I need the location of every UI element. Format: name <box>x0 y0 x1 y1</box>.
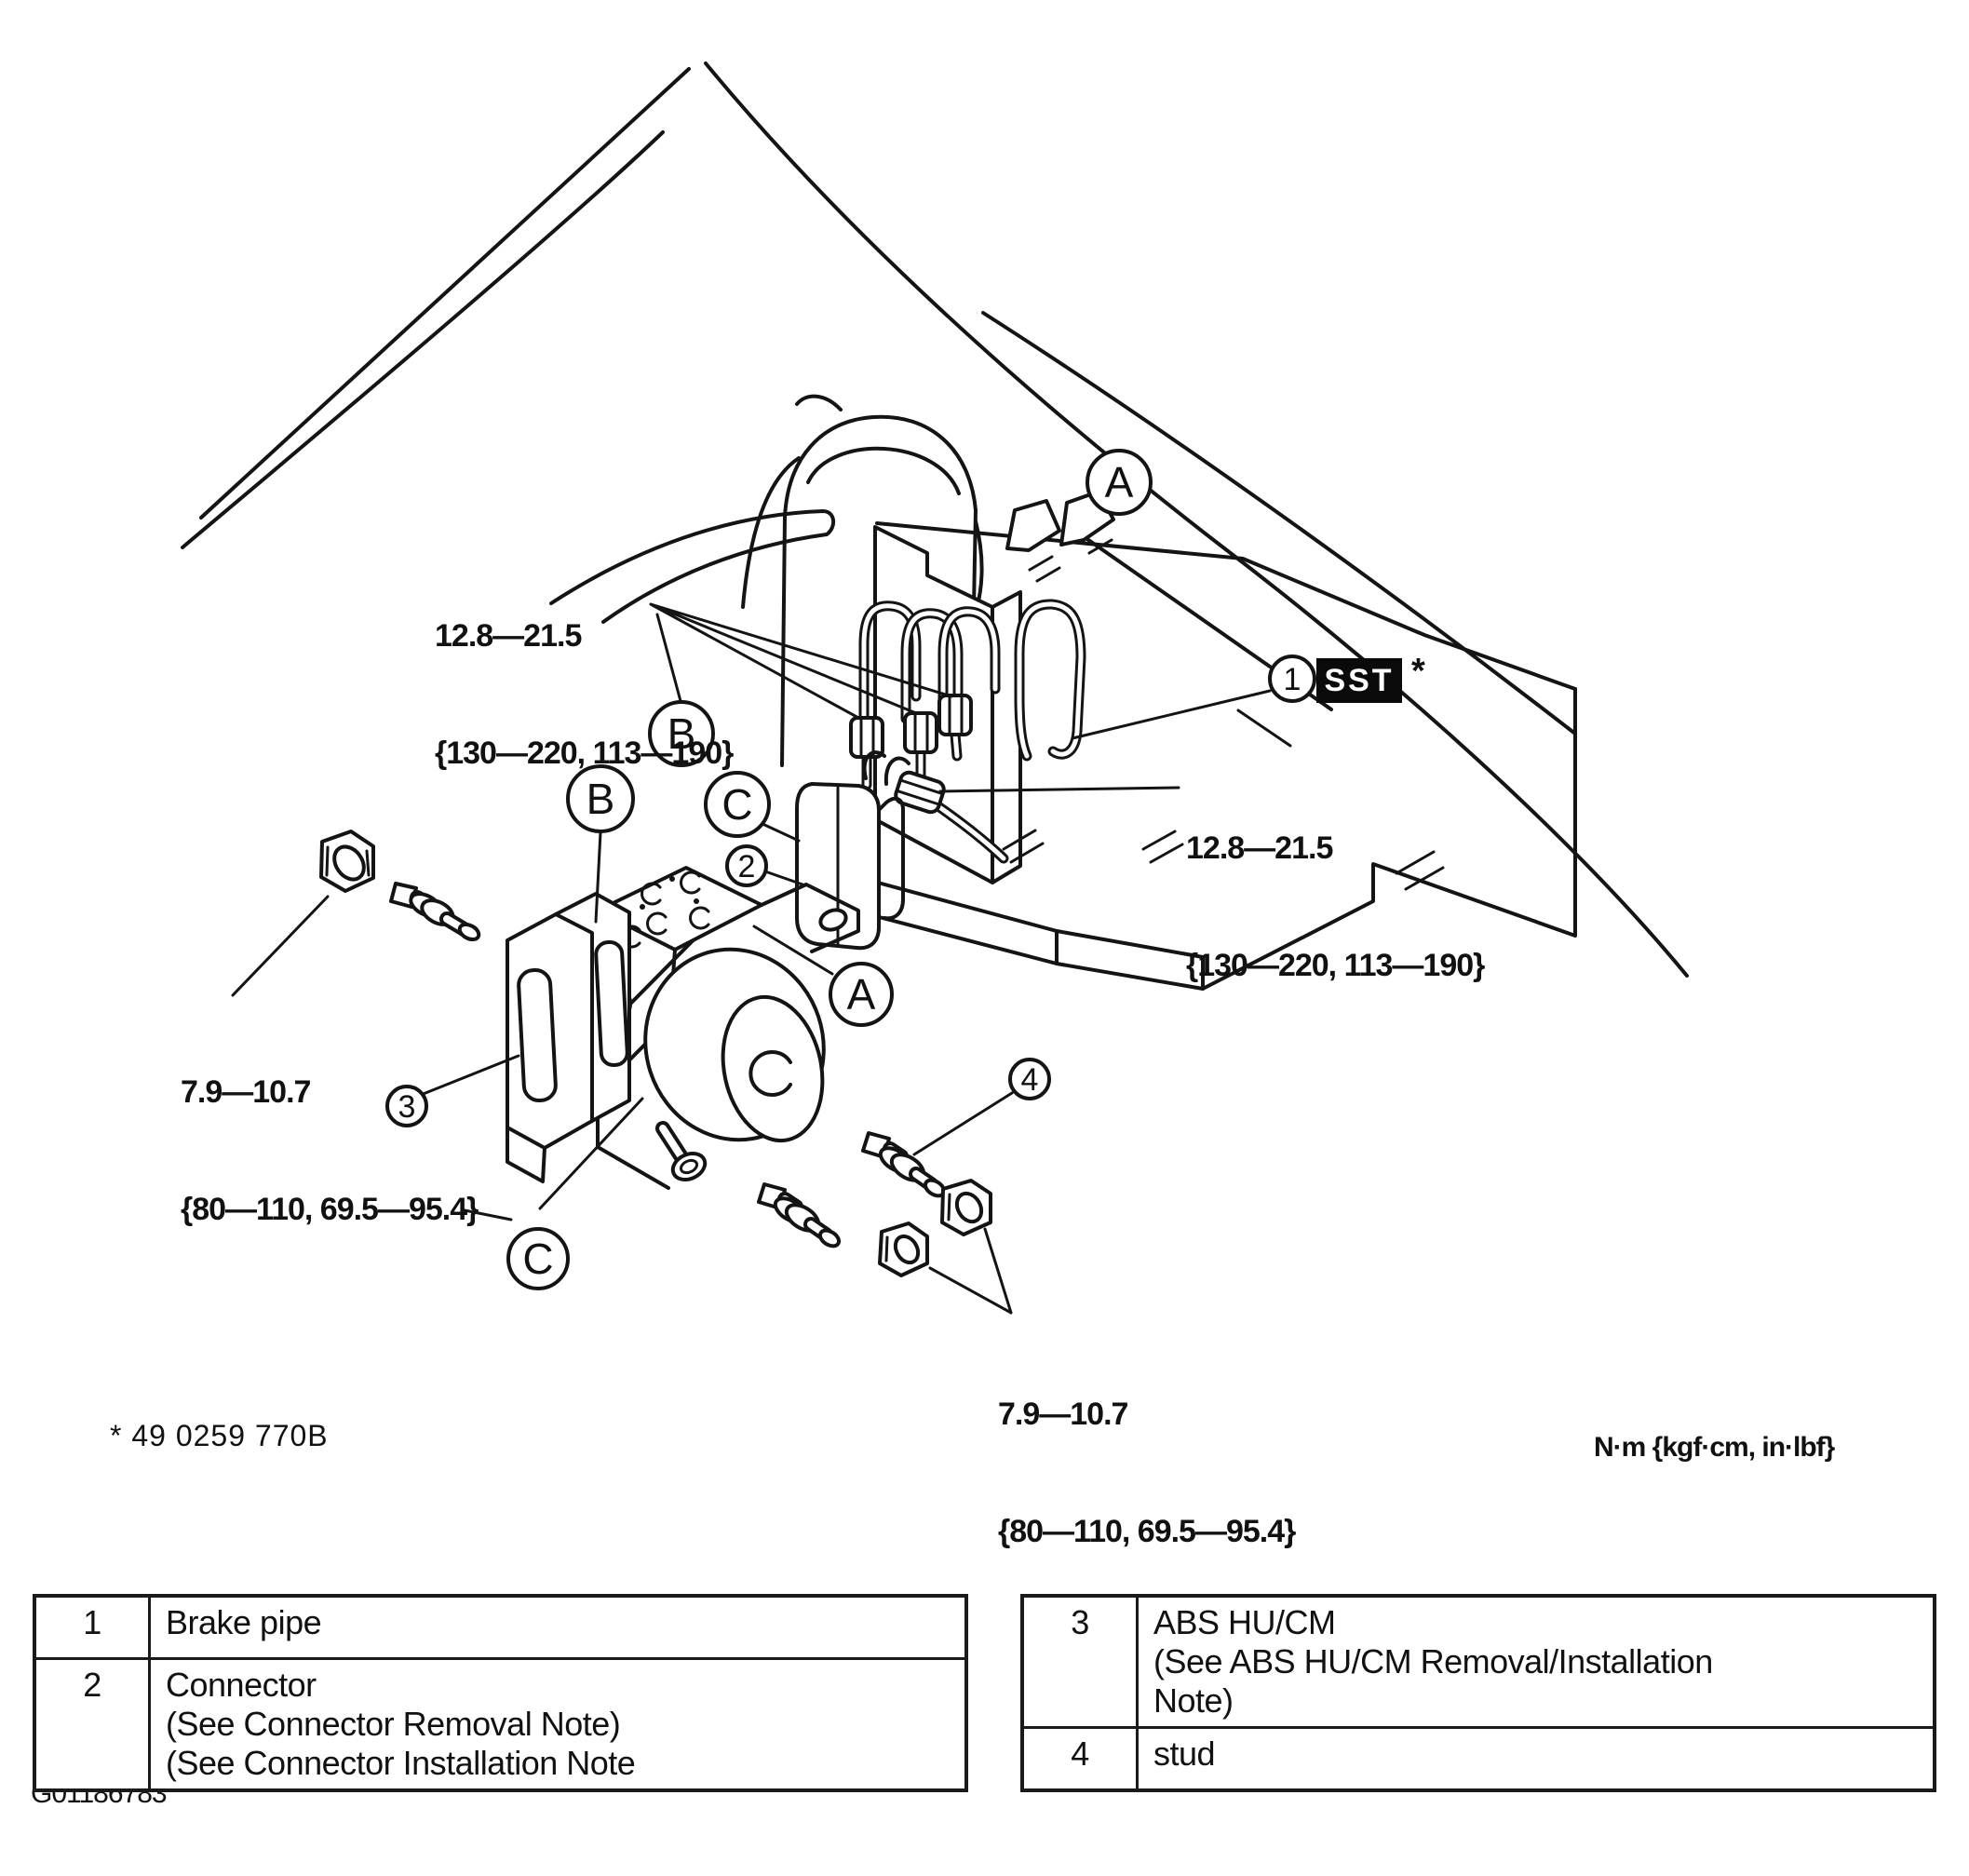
item-description: Brake pipe <box>150 1596 967 1659</box>
callout-a-upper-label: A <box>1105 458 1134 506</box>
torque-value: 12.8—21.5 <box>1186 829 1484 868</box>
callout-item-2-label: 2 <box>738 849 756 884</box>
callout-item-4-label: 4 <box>1021 1062 1039 1098</box>
torque-value-alt-units: {80—110, 69.5—95.4} <box>998 1512 1295 1551</box>
callout-c-lower-label: C <box>522 1235 553 1283</box>
torque-value-alt-units: {130—220, 113—190} <box>1186 946 1484 985</box>
item-number: 3 <box>1022 1596 1138 1728</box>
item-description: Connector (See Connector Removal Note) (… <box>150 1659 967 1791</box>
callout-item-4: 4 <box>1010 1059 1049 1099</box>
torque-label-brake-pipe-right: 12.8—21.5 {130—220, 113—190} <box>1186 750 1484 1024</box>
left-nut <box>321 831 373 891</box>
table-row: 1 Brake pipe <box>34 1596 966 1659</box>
callout-item-2: 2 <box>727 846 766 885</box>
flare-nut-3 <box>939 695 971 735</box>
torque-value-alt-units: {130—220, 113—190} <box>435 734 733 773</box>
table-row: 3 ABS HU/CM (See ABS HU/CM Removal/Insta… <box>1022 1596 1935 1728</box>
flange-nut-2 <box>880 1223 927 1275</box>
sst-part-number-footnote: * 49 0259 770B <box>110 1419 329 1453</box>
torque-label-abs-nut-lower: 7.9—10.7 {80—110, 69.5—95.4} <box>998 1316 1295 1590</box>
torque-value: 7.9—10.7 <box>181 1073 478 1112</box>
left-stud <box>391 884 481 942</box>
callout-a-mid-label: A <box>847 970 876 1019</box>
item-description: stud <box>1138 1728 1935 1791</box>
torque-label-abs-nut-left: 7.9—10.7 {80—110, 69.5—95.4} <box>181 994 478 1268</box>
abs-bracket <box>507 894 629 1181</box>
service-manual-figure: A B B C 2 A 3 C 4 1 12.8—21.5 {130—220, … <box>0 0 1969 1876</box>
legend-table-right: 3 ABS HU/CM (See ABS HU/CM Removal/Insta… <box>1020 1594 1936 1792</box>
callout-c-lower: C <box>508 1229 568 1289</box>
flange-nut-1 <box>942 1181 991 1235</box>
item-number: 1 <box>34 1596 150 1659</box>
sst-badge: SST <box>1316 658 1402 703</box>
callout-item-1: 1 <box>1270 656 1315 701</box>
torque-value-alt-units: {80—110, 69.5—95.4} <box>181 1190 478 1229</box>
stud-2 <box>759 1184 842 1249</box>
callout-a-upper: A <box>1087 451 1151 514</box>
item-description: ABS HU/CM (See ABS HU/CM Removal/Install… <box>1138 1596 1935 1728</box>
sst-footnote-marker: * <box>1411 652 1425 692</box>
legend-table-left: 1 Brake pipe 2 Connector (See Connector … <box>33 1594 968 1792</box>
units-note: N·m {kgf·cm, in·lbf} <box>1594 1432 1834 1464</box>
item-number: 4 <box>1022 1728 1138 1791</box>
table-row: 2 Connector (See Connector Removal Note)… <box>34 1659 966 1791</box>
torque-value: 7.9—10.7 <box>998 1395 1295 1434</box>
callout-a-mid: A <box>830 964 892 1025</box>
torque-label-brake-pipe-upper: 12.8—21.5 {130—220, 113—190} <box>435 538 733 812</box>
table-row: 4 stud <box>1022 1728 1935 1791</box>
torque-value: 12.8—21.5 <box>435 616 733 655</box>
callout-item-1-label: 1 <box>1284 662 1301 697</box>
item-number: 2 <box>34 1659 150 1791</box>
flare-nut-2 <box>905 713 937 752</box>
